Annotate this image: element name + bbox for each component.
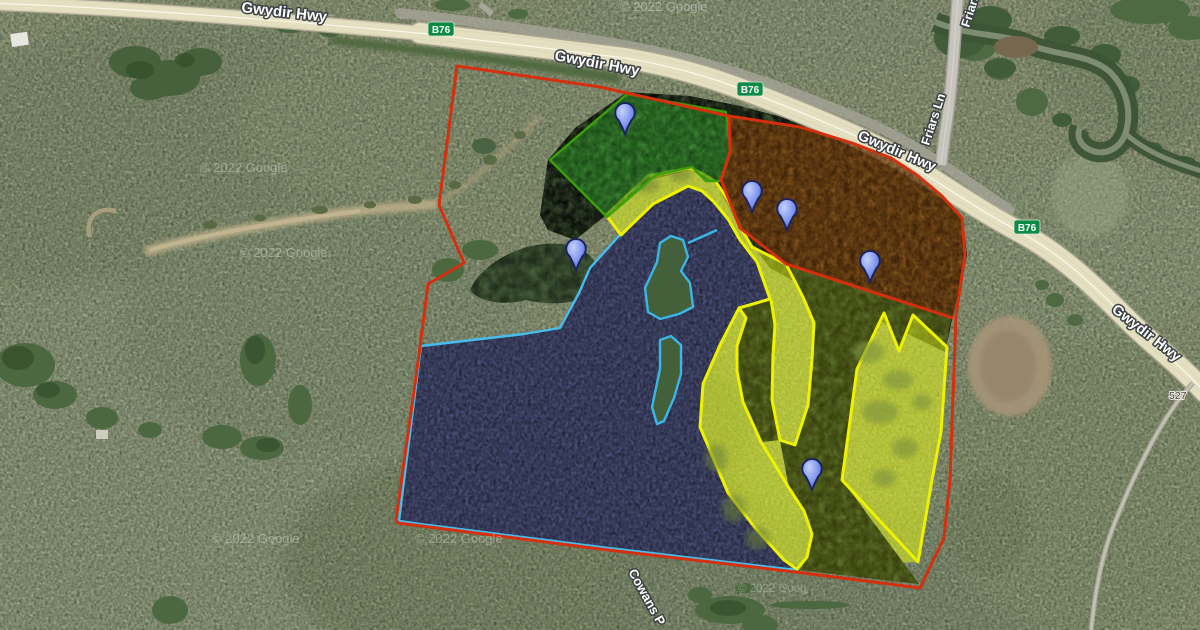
svg-text:B76: B76: [432, 25, 451, 36]
svg-text:© 2022 Google: © 2022 Google: [212, 531, 300, 546]
svg-text:© 2022 Google: © 2022 Google: [415, 531, 503, 546]
svg-text:© 2022 Google: © 2022 Google: [200, 160, 288, 175]
svg-text:527: 527: [1169, 390, 1187, 402]
svg-text:© 2022 Google: © 2022 Google: [620, 0, 708, 14]
svg-text:© 2022 Google: © 2022 Google: [240, 245, 328, 260]
svg-text:B76: B76: [741, 85, 760, 96]
svg-text:B76: B76: [1018, 223, 1037, 234]
svg-text:© 2022 Goog: © 2022 Goog: [738, 583, 807, 595]
